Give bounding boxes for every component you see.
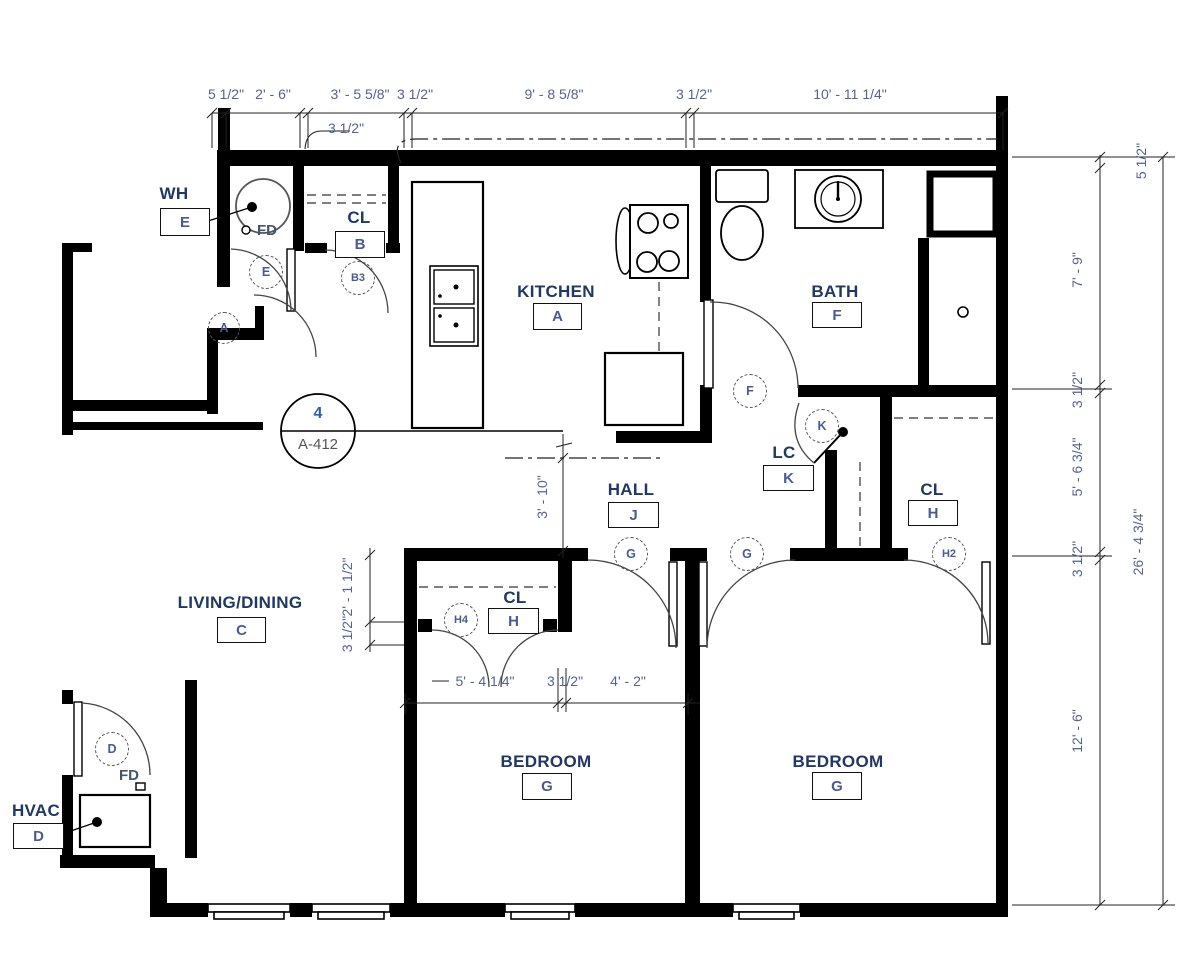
door-tag-a: A bbox=[208, 312, 240, 344]
dim-right-3: 3 1/2" bbox=[1069, 366, 1085, 414]
room-hall: HALL bbox=[581, 480, 681, 500]
door-tag-d: D bbox=[95, 732, 129, 766]
centerlines bbox=[397, 139, 998, 458]
room-cl-h: CL bbox=[902, 480, 962, 500]
dim-right-6: 12' - 6" bbox=[1069, 699, 1085, 763]
door-tag-f: F bbox=[733, 374, 767, 408]
tag-lc: K bbox=[763, 465, 814, 491]
callout-sheet: A-412 bbox=[288, 436, 348, 453]
dim-bed-2: 3 1/2" bbox=[541, 673, 589, 689]
room-living: LIVING/DINING bbox=[140, 593, 340, 613]
door-tag-g2: G bbox=[730, 537, 764, 571]
bath-sink bbox=[795, 170, 883, 228]
callout-number: 4 bbox=[288, 405, 348, 423]
door-tag-k: K bbox=[805, 409, 839, 443]
tag-hall: J bbox=[608, 502, 659, 528]
tag-hvac: D bbox=[13, 823, 64, 849]
room-cl-b: CL bbox=[329, 208, 389, 228]
tag-cl-b: B bbox=[335, 231, 385, 258]
chase bbox=[930, 174, 996, 234]
door-tag-g1: G bbox=[614, 537, 648, 571]
dim-top-6: 3 1/2" bbox=[670, 86, 718, 102]
toilet bbox=[716, 170, 768, 260]
dim-top-5: 9' - 8 5/8" bbox=[512, 86, 596, 102]
floor-drain-wh bbox=[242, 226, 250, 234]
stove bbox=[616, 205, 688, 278]
tag-bedroom1: G bbox=[522, 773, 572, 800]
door-tag-h4: H4 bbox=[444, 603, 478, 637]
room-lc: LC bbox=[754, 443, 814, 463]
dim-right-2: 7' - 9" bbox=[1069, 240, 1085, 300]
room-wh: WH bbox=[144, 184, 204, 204]
dim-bed-3: 4' - 2" bbox=[602, 673, 654, 689]
dim-right-5: 3 1/2" bbox=[1069, 535, 1085, 583]
room-kitchen: KITCHEN bbox=[496, 282, 616, 302]
dim-closet-lower: 3 1/2" bbox=[339, 610, 355, 658]
tag-bath: F bbox=[812, 302, 862, 328]
room-bath: BATH bbox=[785, 282, 885, 302]
dim-hall-depth: 3' - 10" bbox=[534, 462, 550, 532]
room-bedroom2: BEDROOM bbox=[758, 752, 918, 772]
dim-top-4: 3 1/2" bbox=[392, 86, 438, 102]
tag-cl-h4: H bbox=[488, 608, 539, 634]
fd-label-hvac: FD bbox=[112, 767, 146, 784]
floor-plan: WH CL KITCHEN BATH LC HALL CL LIVING/DIN… bbox=[0, 0, 1200, 970]
door-tag-h2: H2 bbox=[932, 537, 966, 571]
tag-cl-h: H bbox=[908, 500, 958, 526]
dim-right-total: 26' - 4 3/4" bbox=[1130, 498, 1146, 586]
dim-top-7: 10' - 11 1/4" bbox=[800, 86, 900, 102]
dim-right-4: 5' - 6 3/4" bbox=[1069, 427, 1085, 507]
door-tag-b3: B3 bbox=[341, 261, 375, 295]
tag-living: C bbox=[217, 617, 266, 643]
room-hvac: HVAC bbox=[0, 801, 72, 821]
room-cl-h4: CL bbox=[485, 588, 545, 608]
kitchen-island bbox=[412, 182, 483, 428]
dim-top-2: 2' - 6" bbox=[248, 86, 298, 102]
tag-kitchen: A bbox=[533, 303, 582, 330]
tag-bedroom2: G bbox=[812, 772, 862, 800]
dim-bed-1: 5' - 4 1/4" bbox=[445, 673, 525, 689]
door-tag-e: E bbox=[249, 255, 283, 289]
room-bedroom1: BEDROOM bbox=[466, 752, 626, 772]
hvac-unit bbox=[62, 795, 150, 847]
dim-top-3: 3' - 5 5/8" bbox=[320, 86, 400, 102]
fd-label-wh: FD bbox=[250, 222, 284, 239]
dim-top-1: 5 1/2" bbox=[200, 86, 252, 102]
tag-wh: E bbox=[160, 208, 210, 236]
floor-drain-hvac bbox=[136, 783, 145, 790]
tub-drain bbox=[958, 307, 968, 317]
dim-right-1: 5 1/2" bbox=[1133, 137, 1149, 185]
kitchen-counter bbox=[605, 353, 683, 425]
dim-wall-leader: 3 1/2" bbox=[322, 120, 370, 136]
